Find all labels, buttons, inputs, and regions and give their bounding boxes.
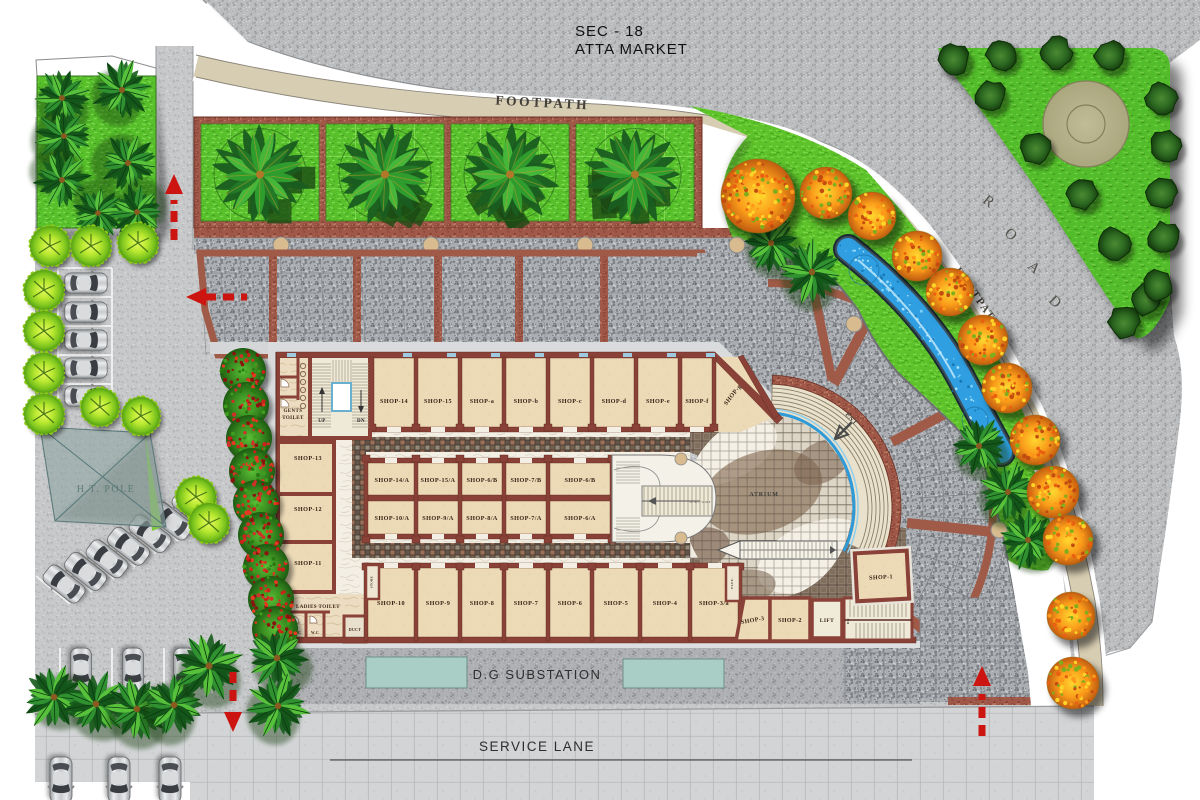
svg-text:SHOP-9: SHOP-9 <box>426 600 450 607</box>
svg-text:ATRIUM: ATRIUM <box>749 492 778 498</box>
svg-text:ELEC.: ELEC. <box>730 577 734 588</box>
svg-text:SHOP-12: SHOP-12 <box>294 506 322 513</box>
svg-text:SHOP-5: SHOP-5 <box>604 600 628 607</box>
svg-text:SERVICE LANE: SERVICE LANE <box>479 739 595 754</box>
svg-text:SHOP-6/B: SHOP-6/B <box>466 477 497 484</box>
svg-text:SHOP-7/A: SHOP-7/A <box>510 515 542 522</box>
svg-text:SHOP-2: SHOP-2 <box>778 618 802 624</box>
svg-text:SHOP-7/B: SHOP-7/B <box>510 477 541 484</box>
svg-text:SHOP-6: SHOP-6 <box>558 600 582 607</box>
svg-text:SHOP-a: SHOP-a <box>470 398 494 405</box>
svg-text:SHOP-d: SHOP-d <box>602 398 627 405</box>
svg-text:SHOP-15: SHOP-15 <box>424 398 452 405</box>
svg-text:SHOP-c: SHOP-c <box>558 398 582 405</box>
svg-text:SHOP-6/A: SHOP-6/A <box>564 515 596 522</box>
svg-text:SHOP-4: SHOP-4 <box>653 600 677 607</box>
svg-text:SHOP-10: SHOP-10 <box>377 600 405 607</box>
svg-text:SHOP-1: SHOP-1 <box>869 574 893 581</box>
svg-text:SEC - 18: SEC - 18 <box>575 23 644 40</box>
svg-text:30 MT. WIDE: 30 MT. WIDE <box>689 500 711 504</box>
svg-text:D.G SUBSTATION: D.G SUBSTATION <box>473 667 602 682</box>
svg-text:LADIES TOILET: LADIES TOILET <box>296 605 340 610</box>
svg-text:SHOP-11: SHOP-11 <box>294 560 322 567</box>
svg-text:SHOP-9/A: SHOP-9/A <box>422 515 454 522</box>
svg-text:ATTA MARKET: ATTA MARKET <box>575 41 688 58</box>
svg-text:SHOP-10/A: SHOP-10/A <box>375 515 410 522</box>
svg-text:LIFT: LIFT <box>820 618 834 624</box>
svg-text:SHOP-3/a: SHOP-3/a <box>699 600 729 607</box>
svg-text:SHOP-14/A: SHOP-14/A <box>375 477 410 484</box>
svg-text:DUCT: DUCT <box>349 628 361 632</box>
svg-text:SHOP-7: SHOP-7 <box>514 600 538 607</box>
svg-text:STORE: STORE <box>370 576 374 588</box>
svg-text:SHOP-6/B: SHOP-6/B <box>564 477 595 484</box>
svg-text:SHOP-15/A: SHOP-15/A <box>421 477 456 484</box>
svg-text:GENTS: GENTS <box>284 409 303 414</box>
svg-text:W.C: W.C <box>311 631 319 635</box>
svg-text:DN: DN <box>846 618 850 624</box>
svg-text:DN: DN <box>357 419 365 424</box>
svg-text:UP: UP <box>318 419 325 424</box>
svg-text:SHOP-14: SHOP-14 <box>380 398 408 405</box>
svg-text:H.T. POLE: H.T. POLE <box>77 484 136 495</box>
svg-text:SHOP-e: SHOP-e <box>646 398 670 405</box>
svg-text:SHOP-8: SHOP-8 <box>470 600 494 607</box>
svg-text:TOILET: TOILET <box>282 416 304 421</box>
svg-text:SHOP-13: SHOP-13 <box>294 455 322 462</box>
svg-text:SHOP-f: SHOP-f <box>685 398 709 405</box>
svg-text:SHOP-b: SHOP-b <box>514 398 539 405</box>
svg-text:SHOP-8/A: SHOP-8/A <box>466 515 498 522</box>
